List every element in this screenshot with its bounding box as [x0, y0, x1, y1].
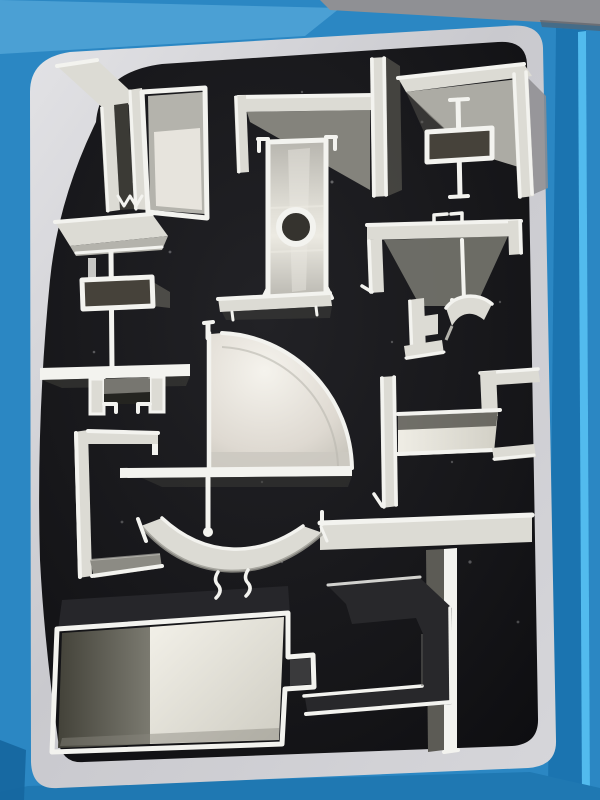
edge-tab: [88, 258, 96, 278]
photo-aluminum-profiles: [0, 0, 600, 800]
profile-box-tube: [52, 586, 314, 752]
photo-canvas: [0, 0, 600, 800]
frame-bottom-left-shade: [0, 740, 26, 800]
